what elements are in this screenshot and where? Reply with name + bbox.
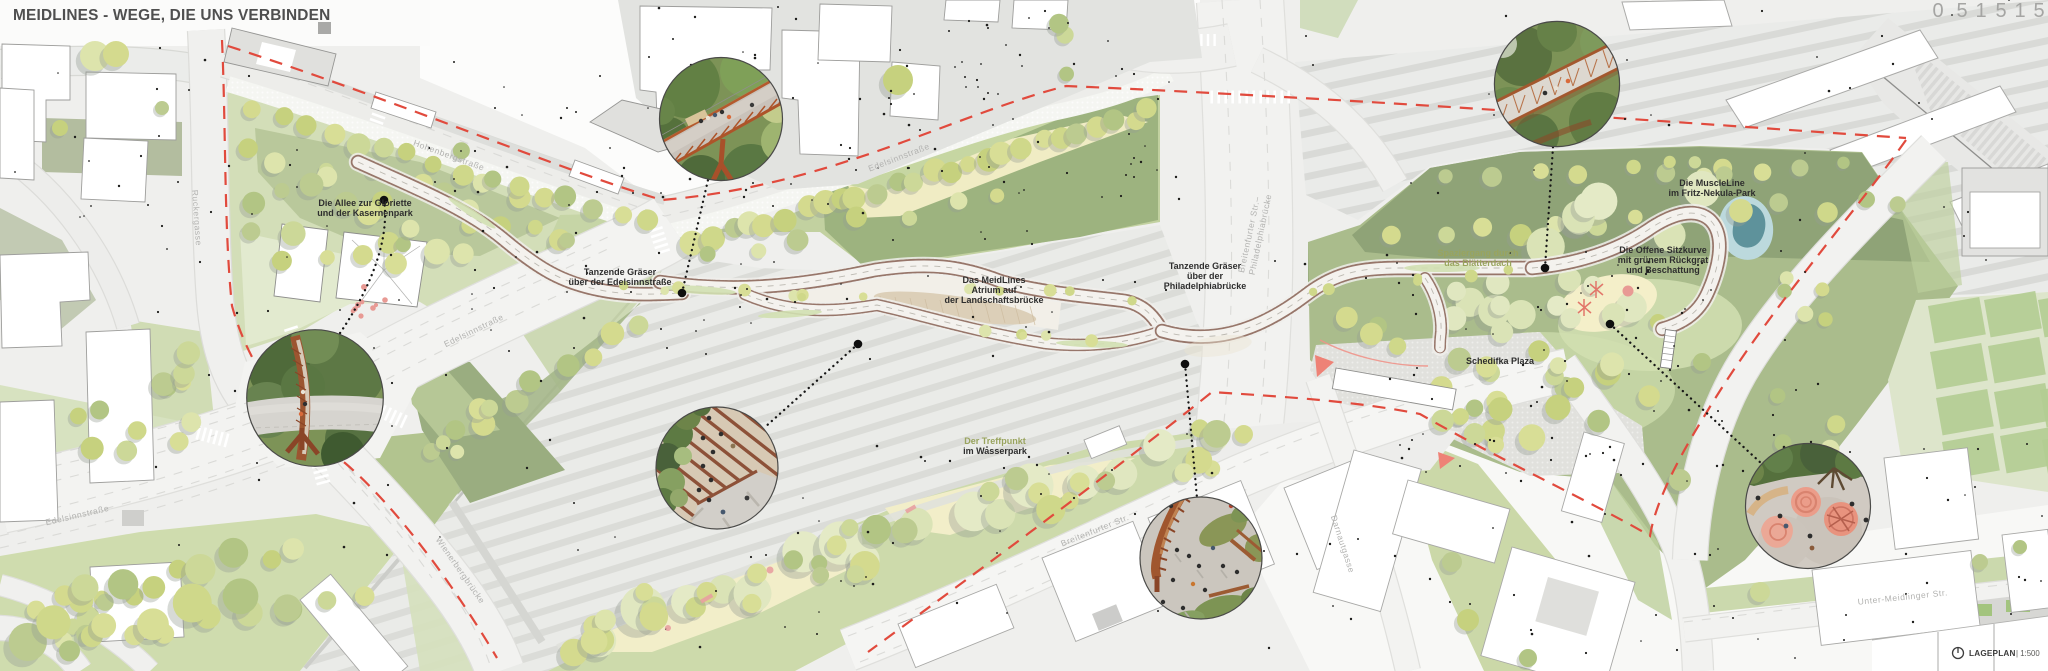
svg-text:und Beschattung: und Beschattung <box>1626 265 1700 275</box>
svg-text:Tanzende Gräser: Tanzende Gräser <box>584 267 657 277</box>
svg-text:Die Offene Sitzkurve: Die Offene Sitzkurve <box>1619 245 1707 255</box>
svg-text:| 1:500: | 1:500 <box>2016 649 2040 658</box>
svg-text:das Blätterdach: das Blätterdach <box>1444 258 1512 268</box>
svg-text:und der Kasernenpark: und der Kasernenpark <box>317 208 414 218</box>
svg-text:mit grünem Rückgrat: mit grünem Rückgrat <box>1618 255 1709 265</box>
svg-text:Philadelphiabrücke: Philadelphiabrücke <box>1164 281 1247 291</box>
svg-text:Atrium auf: Atrium auf <box>972 285 1018 295</box>
svg-text:Das MeidLines: Das MeidLines <box>962 275 1025 285</box>
svg-text:der Landschaftsbrücke: der Landschaftsbrücke <box>944 295 1043 305</box>
svg-text:Die MuscleLine: Die MuscleLine <box>1679 178 1745 188</box>
svg-text:Spaziergang durch: Spaziergang durch <box>1437 248 1518 258</box>
svg-text:LAGEPLAN: LAGEPLAN <box>1969 649 2016 658</box>
svg-text:über der: über der <box>1187 271 1224 281</box>
svg-text:MEIDLINES - WEGE, DIE UNS VERB: MEIDLINES - WEGE, DIE UNS VERBINDEN <box>13 7 330 24</box>
svg-text:Tanzende Gräser: Tanzende Gräser <box>1169 261 1242 271</box>
svg-text:über der Edelsinnstraße: über der Edelsinnstraße <box>568 277 671 287</box>
svg-text:im Fritz-Nekula-Park: im Fritz-Nekula-Park <box>1668 188 1756 198</box>
svg-text:Die Allee zur Gloriette: Die Allee zur Gloriette <box>318 198 411 208</box>
svg-text:im Wasserpark: im Wasserpark <box>963 446 1028 456</box>
svg-text:Schedifka Plaza: Schedifka Plaza <box>1466 356 1535 366</box>
svg-text:Der Treffpunkt: Der Treffpunkt <box>964 436 1026 446</box>
